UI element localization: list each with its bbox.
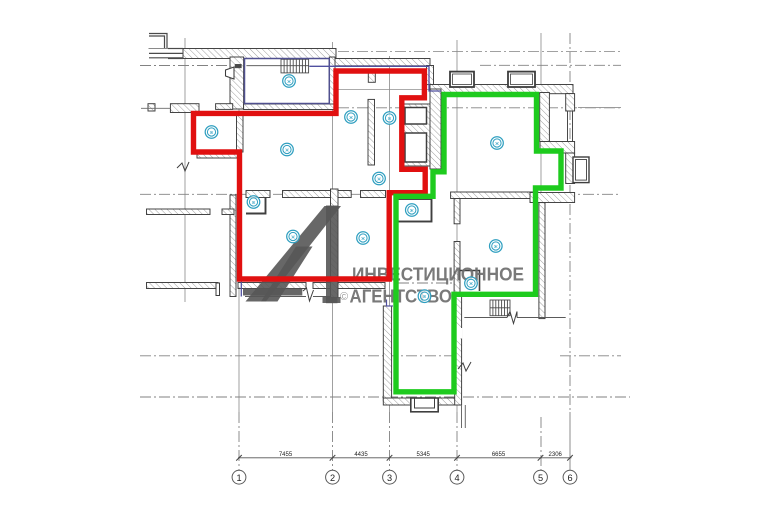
svg-text:4435: 4435 bbox=[354, 452, 368, 458]
svg-text:5345: 5345 bbox=[417, 452, 431, 458]
svg-text:АГЕНТСТВО: АГЕНТСТВО bbox=[350, 286, 453, 306]
svg-text:2306: 2306 bbox=[549, 452, 563, 458]
svg-text:4: 4 bbox=[454, 473, 459, 483]
svg-text:6655: 6655 bbox=[492, 452, 506, 458]
svg-text:2: 2 bbox=[330, 473, 335, 483]
svg-text:7455: 7455 bbox=[279, 452, 293, 458]
svg-text:5: 5 bbox=[538, 473, 543, 483]
svg-text:©: © bbox=[340, 291, 348, 303]
svg-text:3: 3 bbox=[387, 473, 392, 483]
svg-text:1: 1 bbox=[236, 473, 241, 483]
svg-text:6: 6 bbox=[567, 473, 572, 483]
